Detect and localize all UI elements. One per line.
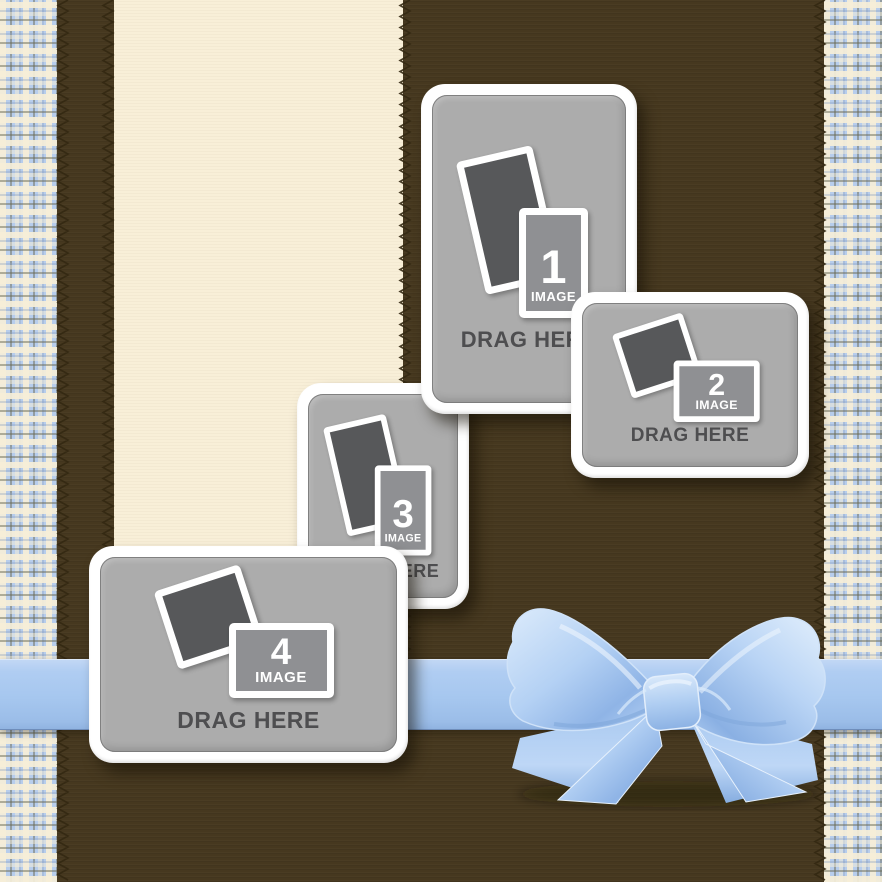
placeholder-number: 3 <box>392 497 413 530</box>
placeholder-number: 2 <box>708 372 725 398</box>
satin-bow-icon <box>500 596 830 811</box>
placeholder-image-label: IMAGE <box>531 289 576 304</box>
plaid-border-left <box>0 0 57 882</box>
placeholder-image-label: IMAGE <box>385 531 422 543</box>
plaid-border-right <box>824 0 882 882</box>
placeholder-image-label: IMAGE <box>695 398 737 412</box>
placeholder-image-label: IMAGE <box>255 669 307 686</box>
drag-here-label: DRAG HERE <box>631 425 750 447</box>
scrapbook-template-page: 3 IMAGE DRAG HERE 1 IMAGE DRAG HERE <box>0 0 882 882</box>
photo-stack-icon: 2 IMAGE <box>620 322 759 422</box>
photo-stack-icon: 4 IMAGE <box>164 576 334 698</box>
photo-front-icon: 2 IMAGE <box>674 361 760 423</box>
image-dropzone-4[interactable]: 4 IMAGE DRAG HERE <box>89 546 408 763</box>
photo-stack-icon: 3 IMAGE <box>335 414 432 555</box>
zigzag-stitch-icon <box>56 0 70 882</box>
photo-front-icon: 3 IMAGE <box>375 465 432 555</box>
photo-stack-icon: 1 IMAGE <box>470 146 588 318</box>
dropzone-panel: 4 IMAGE DRAG HERE <box>100 557 397 752</box>
placeholder-number: 1 <box>540 247 566 287</box>
image-dropzone-2[interactable]: 2 IMAGE DRAG HERE <box>571 292 809 478</box>
photo-front-icon: 4 IMAGE <box>229 623 334 698</box>
drag-here-label: DRAG HERE <box>177 707 320 734</box>
placeholder-number: 4 <box>271 636 292 667</box>
dropzone-panel: 2 IMAGE DRAG HERE <box>582 303 798 467</box>
